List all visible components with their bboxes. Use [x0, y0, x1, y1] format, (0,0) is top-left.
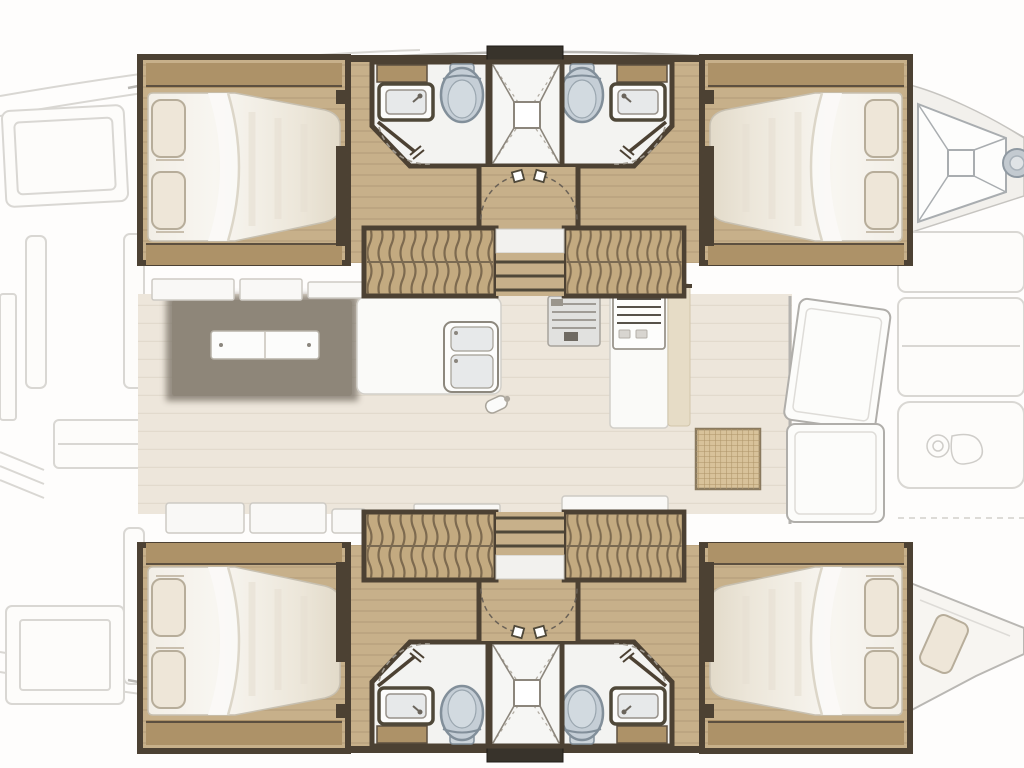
- aft-deck-rail: [26, 236, 46, 388]
- saloon-bench: [152, 279, 234, 300]
- bottom-hull: [140, 512, 910, 762]
- catamaran-floorplan-page: [0, 0, 1024, 768]
- aft-deck-pad: [2, 105, 129, 207]
- saloon-bench: [308, 282, 364, 298]
- nav-panel: [548, 296, 600, 346]
- stove: [613, 291, 665, 349]
- saloon-bench: [240, 279, 302, 300]
- front-door-leaf: [787, 424, 884, 522]
- aft-deck-pad: [6, 606, 124, 704]
- table-top: [211, 331, 319, 359]
- floor-grating: [696, 429, 760, 489]
- catamaran-floorplan-image: [0, 0, 1024, 768]
- saloon-bench: [250, 503, 326, 533]
- transom-step: [0, 294, 16, 420]
- saloon-bench: [332, 509, 366, 533]
- saloon: [138, 279, 891, 533]
- saloon-bench: [166, 503, 244, 533]
- aft-deck-bench: [54, 420, 146, 468]
- foredeck: [898, 232, 1024, 518]
- top-hull: [140, 46, 910, 296]
- galley-aft-unit: [610, 282, 692, 428]
- front-door-leaf: [783, 298, 891, 432]
